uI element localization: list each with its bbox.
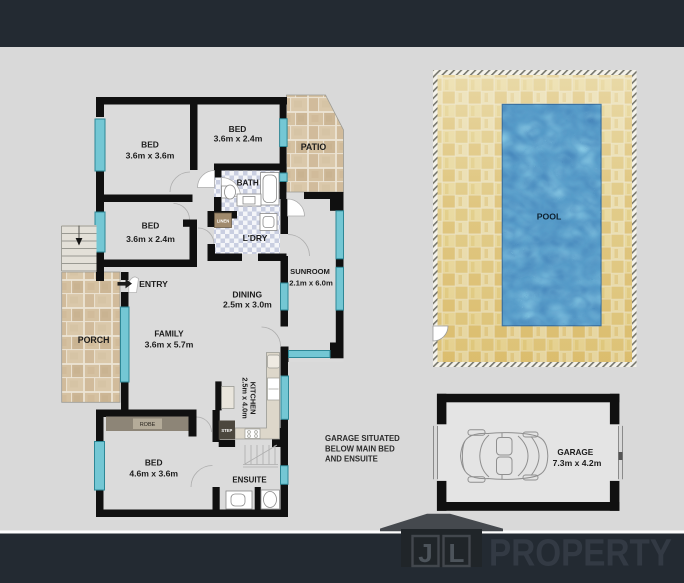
svg-text:STEP: STEP	[221, 428, 232, 433]
svg-text:PROPERTY: PROPERTY	[489, 533, 672, 575]
svg-text:LINEN: LINEN	[217, 219, 230, 224]
svg-text:3.6m x 2.4m: 3.6m x 2.4m	[126, 234, 175, 244]
svg-text:GARAGE SITUATED: GARAGE SITUATED	[325, 434, 400, 443]
svg-text:GARAGE: GARAGE	[557, 448, 593, 457]
svg-text:AND ENSUITE: AND ENSUITE	[325, 455, 378, 464]
svg-text:4.6m x 3.6m: 4.6m x 3.6m	[129, 469, 178, 479]
svg-text:3.6m x 5.7m: 3.6m x 5.7m	[145, 340, 194, 350]
svg-text:L: L	[449, 538, 465, 568]
svg-text:PORCH: PORCH	[78, 335, 110, 345]
svg-text:L'DRY: L'DRY	[243, 233, 268, 243]
svg-text:BED: BED	[141, 140, 159, 150]
svg-text:SUNROOM: SUNROOM	[290, 267, 330, 276]
svg-text:J: J	[418, 538, 432, 568]
svg-text:2.1m x 6.0m: 2.1m x 6.0m	[289, 279, 333, 288]
svg-text:POOL: POOL	[537, 212, 562, 222]
svg-text:BELOW MAIN BED: BELOW MAIN BED	[325, 444, 395, 453]
svg-text:7.3m x 4.2m: 7.3m x 4.2m	[553, 458, 602, 468]
svg-text:2.5m x 4.0m: 2.5m x 4.0m	[240, 377, 249, 419]
svg-text:2.5m x 3.0m: 2.5m x 3.0m	[223, 300, 272, 310]
svg-text:BED: BED	[145, 458, 163, 468]
svg-text:3.6m x 3.6m: 3.6m x 3.6m	[126, 151, 175, 161]
svg-text:3.6m x 2.4m: 3.6m x 2.4m	[214, 134, 263, 144]
svg-text:PATIO: PATIO	[301, 142, 327, 152]
svg-text:BED: BED	[229, 124, 247, 134]
svg-text:BATH: BATH	[237, 179, 259, 188]
svg-text:ENSUITE: ENSUITE	[232, 475, 266, 484]
svg-text:ROBE: ROBE	[140, 422, 156, 428]
svg-text:FAMILY: FAMILY	[154, 329, 184, 338]
svg-text:ENTRY: ENTRY	[139, 279, 168, 289]
svg-text:BED: BED	[142, 221, 160, 231]
svg-text:DINING: DINING	[232, 289, 262, 299]
